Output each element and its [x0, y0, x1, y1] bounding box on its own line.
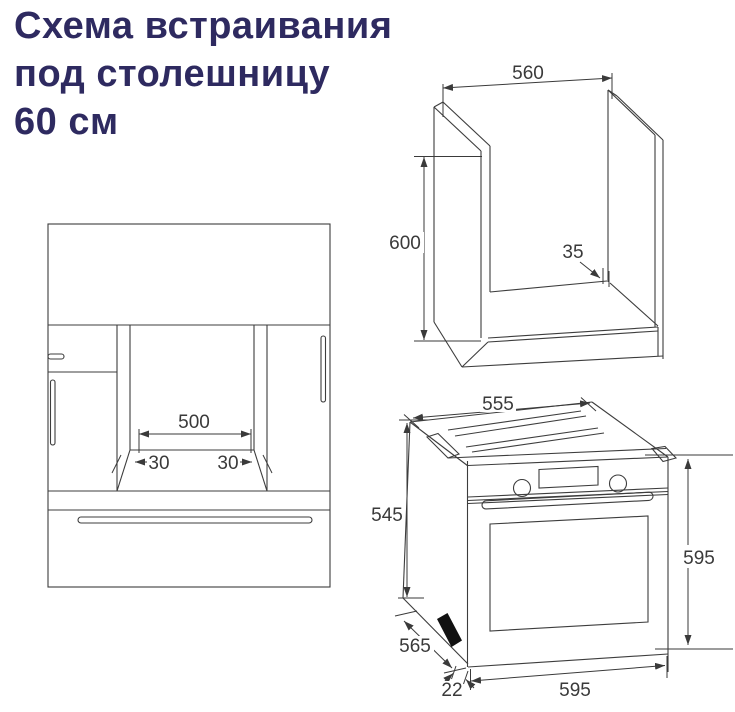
right-door-handle: [321, 336, 326, 402]
upper-drawer-handle: [48, 354, 64, 359]
dim-oven-front-width-595: 595: [471, 656, 668, 701]
dim-label-oven-565: 565: [399, 636, 431, 657]
dim-left-offset: 30: [112, 453, 170, 474]
dim-niche-rear-gap-35: 35: [562, 242, 609, 287]
door-handle: [482, 492, 653, 509]
door-bottom-edge: [468, 654, 668, 667]
dim-label-niche-35: 35: [562, 242, 583, 263]
dim-right-offset: 30: [217, 453, 272, 474]
dim-label-left-offset: 30: [148, 453, 169, 474]
dim-niche-width-560: 560: [443, 63, 612, 117]
dim-oven-front-height-595: 595: [645, 455, 733, 649]
left-knob: [514, 480, 531, 497]
control-panel-top: [468, 457, 668, 466]
right-knob: [610, 475, 627, 492]
cabinet-outline: [48, 224, 330, 587]
installation-diagram: 500 30 30: [0, 0, 735, 712]
dim-label-oven-545: 545: [371, 505, 403, 526]
dim-label-oven-bottom-595: 595: [559, 680, 591, 701]
dim-label-right-offset: 30: [217, 453, 238, 474]
dim-label-niche-560: 560: [512, 63, 544, 84]
page: Схема встраивания под столешницу 60 см: [0, 0, 735, 712]
oven-3d-figure: 555 545 565 22: [369, 394, 733, 701]
door-glass: [490, 516, 648, 631]
display-screen: [539, 467, 598, 489]
bottom-drawer-handle: [78, 517, 312, 523]
dim-label-oven-right-595: 595: [683, 548, 715, 569]
dim-label-niche-width: 500: [178, 412, 210, 433]
cabinet-niche-3d-figure: 560 600 35: [387, 63, 663, 367]
cabinet-front-view-figure: 500 30 30: [48, 224, 330, 587]
dim-label-niche-600: 600: [389, 233, 421, 254]
dim-label-oven-555: 555: [482, 394, 514, 415]
left-door-handle: [51, 380, 56, 445]
dim-oven-body-height-545: 545: [369, 420, 428, 598]
dim-label-oven-22: 22: [441, 680, 462, 701]
dim-oven-door-protrusion-22: 22: [440, 666, 474, 701]
side-vent-grille: [437, 613, 462, 647]
dim-niche-width: 500: [139, 412, 251, 453]
